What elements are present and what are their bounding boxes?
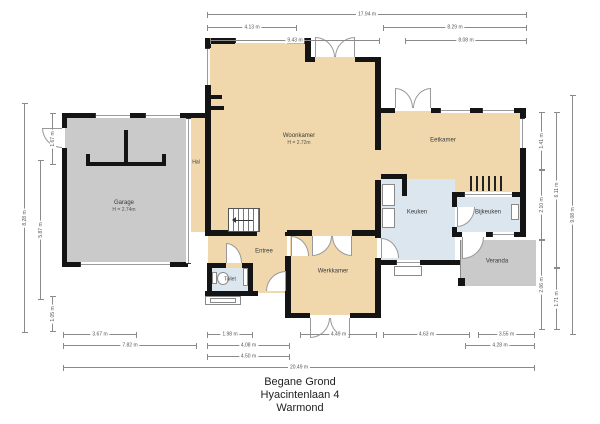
radiator-fixture xyxy=(470,176,506,191)
plan-title: Begane Grond Hyacintenlaan 4 Warmond xyxy=(0,376,600,415)
dimension-line: 20.49 m xyxy=(63,367,535,368)
wall-segment xyxy=(130,113,145,118)
dimension-line: 1.67 m xyxy=(52,113,53,165)
kitchen-counter xyxy=(382,208,395,228)
wall-segment xyxy=(470,108,482,113)
wall-segment xyxy=(375,180,381,232)
wall-segment xyxy=(248,263,253,296)
garage-fixture xyxy=(162,154,166,166)
dimension-line: 4.63 m xyxy=(383,334,470,335)
wall-segment xyxy=(452,232,462,237)
floorplan-canvas: GarageH = 2.74m Hal WoonkamerH = 2.72m E… xyxy=(0,0,600,424)
dimension-line: 9.43 m xyxy=(210,40,380,41)
door-arc xyxy=(413,88,431,108)
garage-fixture xyxy=(86,162,166,166)
wall-segment xyxy=(62,113,67,128)
window xyxy=(396,260,422,265)
wall-segment xyxy=(520,108,526,118)
wall-stub xyxy=(211,95,222,99)
room-label-eetkamer: Eetkamer xyxy=(430,138,456,145)
title-city: Warmond xyxy=(0,402,600,415)
dimension-line: 7.82 m xyxy=(63,345,197,346)
wall-segment xyxy=(512,192,524,197)
window xyxy=(186,118,191,264)
dimension-line: 3.67 m xyxy=(63,334,137,335)
wall-segment xyxy=(180,113,208,118)
stairs-arrow-icon xyxy=(233,220,253,221)
room-label-woonkamer: WoonkamerH = 2.72m xyxy=(283,133,315,147)
wall-segment xyxy=(305,57,315,62)
veranda-post xyxy=(458,278,465,286)
wall-segment xyxy=(452,192,457,207)
dimension-line: 4.49 m xyxy=(300,334,377,335)
dimension-line: 4.13 m xyxy=(207,27,297,28)
dimension-line: 4.28 m xyxy=(465,345,535,346)
window xyxy=(482,108,516,113)
window xyxy=(205,48,210,87)
wall-segment xyxy=(431,108,440,113)
wall-segment xyxy=(375,57,381,115)
room-label-toilet: Toilet xyxy=(224,277,236,284)
dimension-line: 4.08 m xyxy=(207,345,290,346)
dimension-line: 8.08 m xyxy=(405,40,527,41)
back-step xyxy=(394,266,422,276)
dimension-line: 1.71 m xyxy=(556,268,557,330)
room-label-bijkeuken: Bijkeuken xyxy=(475,210,501,217)
window xyxy=(95,113,132,118)
garage-fixture xyxy=(124,130,128,164)
dimension-line: 1.41 m xyxy=(541,112,542,170)
wall-segment xyxy=(205,85,211,115)
room-label-entree: Entree xyxy=(255,249,273,256)
dimension-line: 17.94 m xyxy=(207,14,527,15)
title-address: Hyacintenlaan 4 xyxy=(0,389,600,402)
window xyxy=(440,108,472,113)
garage-fixture xyxy=(86,154,90,166)
wall-segment xyxy=(514,232,524,237)
wall-stub xyxy=(211,106,224,110)
wall-segment xyxy=(62,262,80,267)
wall-segment xyxy=(205,115,211,232)
entry-step xyxy=(210,298,236,303)
window xyxy=(520,118,525,150)
dimension-line: 6.11 m xyxy=(556,112,557,268)
wall-segment xyxy=(286,291,291,296)
dimension-line: 9.08 m xyxy=(572,95,573,335)
dimension-line: 3.55 m xyxy=(478,334,535,335)
dimension-line: 8.28 m xyxy=(24,103,25,333)
kitchen-counter xyxy=(382,184,395,206)
wall-segment xyxy=(378,108,395,113)
wall-segment xyxy=(375,115,381,150)
dimension-line: 2.10 m xyxy=(541,170,542,240)
room-label-veranda: Veranda xyxy=(486,259,508,266)
garage-door xyxy=(80,262,172,267)
door-arc xyxy=(310,318,330,338)
door-arc xyxy=(395,88,413,108)
title-floor: Begane Grond xyxy=(0,376,600,389)
toilet-fixture xyxy=(243,268,248,286)
room-label-hal: Hal xyxy=(192,160,200,167)
window xyxy=(492,232,516,237)
dimension-line: 8.29 m xyxy=(383,27,527,28)
wall-segment xyxy=(350,313,381,318)
room-label-garage: GarageH = 2.74m xyxy=(112,200,135,214)
wall-segment xyxy=(62,148,67,267)
wall-segment xyxy=(402,174,407,196)
dimension-line: 1.05 m xyxy=(52,296,53,332)
dimension-line: 4.50 m xyxy=(207,356,290,357)
window xyxy=(145,113,182,118)
dimension-line: 1.98 m xyxy=(207,334,253,335)
room-label-keuken: Keuken xyxy=(407,210,427,217)
dimension-line: 2.06 m xyxy=(541,240,542,330)
window xyxy=(464,192,514,197)
utility-fixture xyxy=(511,204,519,220)
wall-segment xyxy=(420,260,460,265)
room-label-werkkamer: Werkkamer xyxy=(318,269,349,276)
wall-segment xyxy=(375,258,381,318)
dimension-line: 5.87 m xyxy=(40,160,41,300)
